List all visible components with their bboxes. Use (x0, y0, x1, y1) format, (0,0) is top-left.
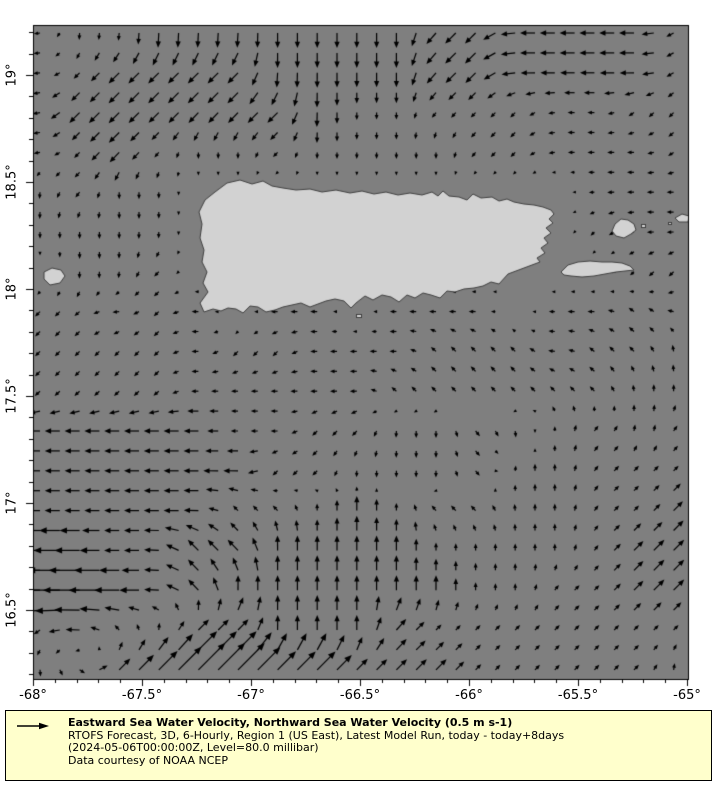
lat-tick-label: 17° (5, 491, 20, 514)
legend-subtitle-runtime: (2024-05-06T00:00:00Z, Level=80.0 millib… (68, 742, 703, 755)
lon-tick-label: -66° (455, 688, 483, 703)
lon-tick-label: -66.5° (340, 688, 380, 703)
lon-tick-label: -65° (673, 688, 701, 703)
reference-vector-arrow-icon (16, 721, 50, 731)
legend-box: Eastward Sea Water Velocity, Northward S… (5, 710, 712, 781)
lon-tick-label: -68° (19, 688, 47, 703)
lat-tick-label: 18° (5, 277, 20, 300)
lon-tick-label: -67° (237, 688, 265, 703)
legend-text: Eastward Sea Water Velocity, Northward S… (68, 717, 703, 767)
forecast-figure: 19°18.5°18°17.5°17°16.5° -68°-67.5°-67°-… (0, 0, 720, 800)
lat-tick-label: 16.5° (5, 592, 20, 627)
velocity-map-canvas (0, 0, 720, 800)
lat-tick-label: 17.5° (5, 378, 20, 413)
lat-tick-label: 19° (5, 63, 20, 86)
legend-title: Eastward Sea Water Velocity, Northward S… (68, 717, 703, 730)
lon-tick-label: -65.5° (558, 688, 598, 703)
lat-tick-label: 18.5° (5, 164, 20, 199)
legend-credit: Data courtesy of NOAA NCEP (68, 755, 703, 768)
lon-tick-label: -67.5° (122, 688, 162, 703)
